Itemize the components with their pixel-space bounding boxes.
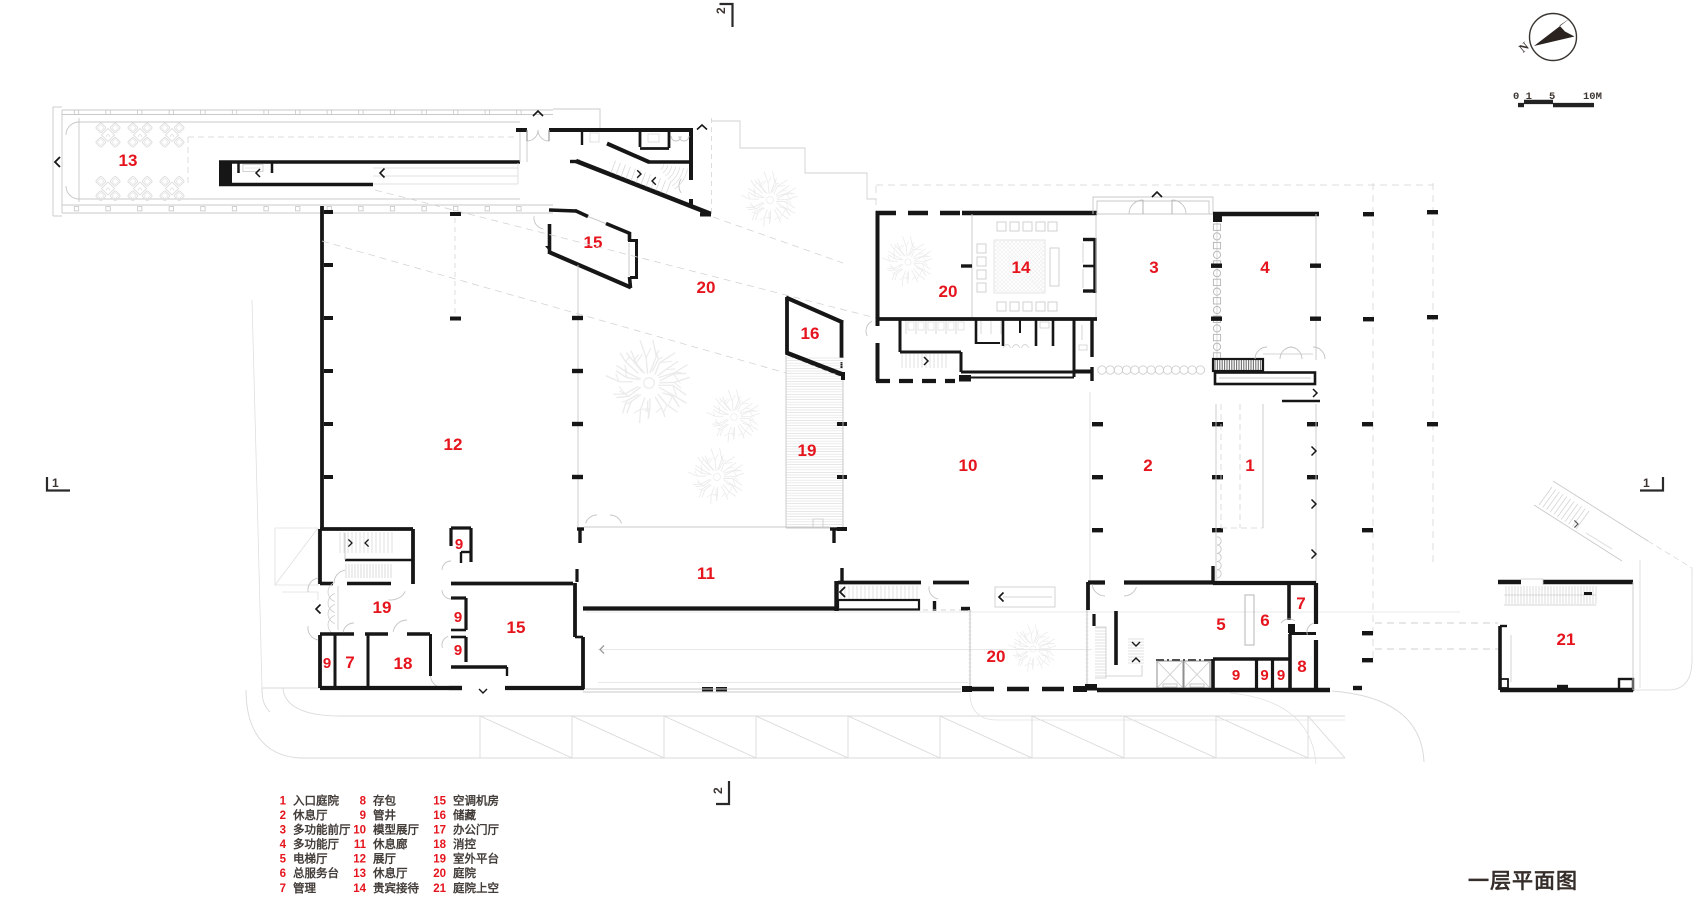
svg-text:1: 1 bbox=[52, 476, 59, 490]
svg-text:4: 4 bbox=[1260, 258, 1270, 277]
svg-text:9: 9 bbox=[1277, 667, 1285, 684]
svg-text:休息厅: 休息厅 bbox=[372, 866, 408, 880]
svg-text:室外平台: 室外平台 bbox=[453, 852, 499, 866]
svg-text:休息廊: 休息廊 bbox=[372, 837, 408, 851]
svg-text:消控: 消控 bbox=[453, 837, 476, 851]
svg-text:1: 1 bbox=[1643, 476, 1650, 490]
svg-text:19: 19 bbox=[798, 441, 817, 460]
svg-text:3: 3 bbox=[280, 825, 286, 837]
svg-text:4: 4 bbox=[280, 839, 287, 851]
svg-text:3: 3 bbox=[1149, 258, 1158, 277]
svg-text:11: 11 bbox=[697, 564, 715, 583]
svg-text:管井: 管井 bbox=[373, 808, 396, 822]
svg-text:1: 1 bbox=[280, 796, 287, 808]
svg-text:总服务台: 总服务台 bbox=[293, 866, 339, 880]
svg-text:8: 8 bbox=[1297, 657, 1306, 676]
svg-text:19: 19 bbox=[373, 598, 392, 617]
svg-text:1: 1 bbox=[1245, 456, 1254, 475]
svg-text:6: 6 bbox=[280, 868, 286, 880]
svg-text:展厅: 展厅 bbox=[372, 853, 396, 866]
svg-text:10M: 10M bbox=[1583, 91, 1602, 103]
svg-text:9: 9 bbox=[455, 536, 463, 553]
svg-text:9: 9 bbox=[454, 609, 462, 626]
svg-text:办公门厅: 办公门厅 bbox=[453, 823, 499, 837]
svg-text:8: 8 bbox=[360, 796, 367, 808]
svg-text:管理: 管理 bbox=[293, 881, 316, 895]
svg-text:20: 20 bbox=[433, 868, 446, 880]
svg-text:19: 19 bbox=[433, 854, 446, 866]
svg-text:7: 7 bbox=[1296, 594, 1305, 613]
svg-text:18: 18 bbox=[433, 839, 446, 851]
svg-text:多功能前厅: 多功能前厅 bbox=[293, 823, 351, 837]
svg-text:9: 9 bbox=[1260, 667, 1268, 684]
svg-text:17: 17 bbox=[433, 825, 446, 837]
svg-text:10: 10 bbox=[959, 456, 978, 475]
svg-text:模型展厅: 模型展厅 bbox=[373, 823, 419, 837]
svg-text:存包: 存包 bbox=[373, 794, 396, 808]
svg-text:7: 7 bbox=[280, 883, 286, 895]
svg-text:9: 9 bbox=[323, 655, 331, 672]
svg-text:14: 14 bbox=[353, 883, 366, 895]
svg-text:休息厅: 休息厅 bbox=[292, 808, 328, 822]
svg-text:14: 14 bbox=[1012, 258, 1031, 277]
svg-text:庭院: 庭院 bbox=[453, 866, 476, 880]
svg-text:多功能厅: 多功能厅 bbox=[293, 837, 339, 851]
svg-text:18: 18 bbox=[394, 654, 413, 673]
svg-text:9: 9 bbox=[1232, 667, 1240, 684]
svg-text:11: 11 bbox=[354, 839, 367, 851]
svg-text:5: 5 bbox=[280, 854, 287, 866]
svg-text:储藏: 储藏 bbox=[453, 808, 476, 822]
svg-text:空调机房: 空调机房 bbox=[453, 794, 499, 808]
svg-text:5: 5 bbox=[1216, 615, 1225, 634]
svg-text:一层平面图: 一层平面图 bbox=[1468, 870, 1578, 893]
svg-text:20: 20 bbox=[697, 278, 716, 297]
svg-text:2: 2 bbox=[711, 787, 725, 794]
svg-text:15: 15 bbox=[507, 618, 526, 637]
svg-text:贵宾接待: 贵宾接待 bbox=[373, 881, 419, 895]
svg-text:6: 6 bbox=[1260, 611, 1269, 630]
svg-text:电梯厅: 电梯厅 bbox=[293, 852, 328, 866]
svg-text:21: 21 bbox=[433, 883, 446, 895]
svg-text:10: 10 bbox=[353, 825, 366, 837]
svg-text:16: 16 bbox=[433, 810, 446, 822]
svg-text:入口庭院: 入口庭院 bbox=[293, 794, 339, 808]
svg-text:20: 20 bbox=[939, 282, 958, 301]
svg-text:20: 20 bbox=[987, 647, 1006, 666]
svg-text:9: 9 bbox=[360, 810, 366, 822]
svg-text:庭院上空: 庭院上空 bbox=[453, 881, 499, 895]
svg-text:2: 2 bbox=[1143, 456, 1152, 475]
svg-text:2: 2 bbox=[714, 7, 728, 14]
svg-text:12: 12 bbox=[444, 435, 463, 454]
svg-text:7: 7 bbox=[345, 653, 354, 672]
svg-text:16: 16 bbox=[801, 324, 820, 343]
svg-text:13: 13 bbox=[119, 151, 138, 170]
svg-text:2: 2 bbox=[280, 810, 286, 822]
svg-text:21: 21 bbox=[1557, 630, 1576, 649]
svg-text:13: 13 bbox=[353, 868, 366, 880]
svg-text:15: 15 bbox=[433, 796, 446, 808]
svg-text:12: 12 bbox=[353, 854, 366, 866]
svg-text:15: 15 bbox=[584, 233, 603, 252]
svg-text:9: 9 bbox=[454, 642, 462, 659]
